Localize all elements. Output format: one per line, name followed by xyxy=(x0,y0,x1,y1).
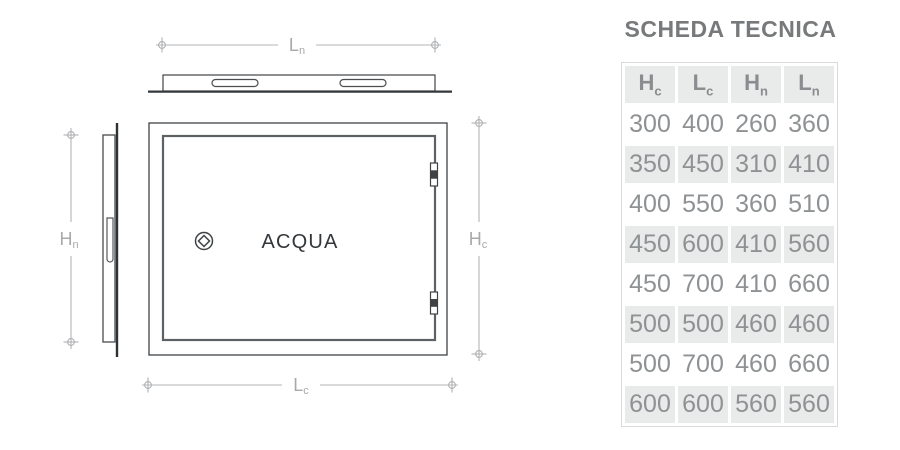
table-row: 450 600 410 560 xyxy=(625,226,834,263)
table-row: 500 500 460 460 xyxy=(625,306,834,343)
table-cell: 510 xyxy=(784,186,834,223)
table-cell: 400 xyxy=(678,106,728,143)
table-cell: 500 xyxy=(678,306,728,343)
table-cell: 500 xyxy=(625,306,675,343)
datasheet-page: Ln Hn ACQUA xyxy=(0,0,900,450)
hinge-icon-bottom xyxy=(431,292,438,314)
dimension-ln: Ln xyxy=(156,35,441,57)
table-cell: 560 xyxy=(784,386,834,423)
page-title: SCHEDA TECNICA xyxy=(621,16,840,43)
table-cell: 410 xyxy=(731,226,781,263)
col-header-lc: Lc xyxy=(678,66,728,103)
table-cell: 260 xyxy=(731,106,781,143)
door-label: ACQUA xyxy=(261,231,338,253)
table-row: 500 700 460 660 xyxy=(625,346,834,383)
col-header-hc: Hc xyxy=(625,66,675,103)
table-cell: 560 xyxy=(731,386,781,423)
dimension-lc: Lc xyxy=(142,375,458,397)
table-row: 350 450 310 410 xyxy=(625,146,834,183)
slot-icon xyxy=(340,80,386,87)
table-cell: 460 xyxy=(731,306,781,343)
table-cell: 450 xyxy=(625,266,675,303)
table-cell: 700 xyxy=(678,346,728,383)
table-row: 400 550 360 510 xyxy=(625,186,834,223)
table-cell: 450 xyxy=(625,226,675,263)
table-cell: 500 xyxy=(625,346,675,383)
dimension-hc: Hc xyxy=(469,116,488,361)
hinge-icon-top xyxy=(431,163,438,186)
table-row: 600 600 560 560 xyxy=(625,386,834,423)
spec-table: Hc Lc Hn Ln 300 400 260 360 350 450 310 … xyxy=(621,62,838,427)
col-header-ln: Ln xyxy=(784,66,834,103)
svg-text:Hn: Hn xyxy=(59,229,78,251)
table-cell: 600 xyxy=(625,386,675,423)
svg-text:Hc: Hc xyxy=(469,229,488,251)
table-cell: 450 xyxy=(678,146,728,183)
table-cell: 360 xyxy=(784,106,834,143)
table-cell: 460 xyxy=(731,346,781,383)
table-header-row: Hc Lc Hn Ln xyxy=(625,66,834,103)
dimension-hn: Hn xyxy=(59,128,78,349)
table-row: 450 700 410 660 xyxy=(625,266,834,303)
table-cell: 360 xyxy=(731,186,781,223)
table-cell: 600 xyxy=(678,386,728,423)
table-cell: 460 xyxy=(784,306,834,343)
table-cell: 700 xyxy=(678,266,728,303)
svg-text:Lc: Lc xyxy=(293,375,309,397)
side-view xyxy=(103,123,117,357)
table-cell: 550 xyxy=(678,186,728,223)
table-cell: 310 xyxy=(731,146,781,183)
table-cell: 660 xyxy=(784,346,834,383)
technical-drawing: Ln Hn ACQUA xyxy=(0,0,560,450)
table-cell: 410 xyxy=(784,146,834,183)
table-cell: 600 xyxy=(678,226,728,263)
table-cell: 400 xyxy=(625,186,675,223)
table-row: 300 400 260 360 xyxy=(625,106,834,143)
slot-icon xyxy=(212,80,258,87)
top-view xyxy=(148,75,452,92)
table-cell: 350 xyxy=(625,146,675,183)
col-header-hn: Hn xyxy=(731,66,781,103)
table-cell: 560 xyxy=(784,226,834,263)
front-view: ACQUA xyxy=(149,123,447,355)
table-cell: 410 xyxy=(731,266,781,303)
svg-text:Ln: Ln xyxy=(289,35,305,57)
table-cell: 300 xyxy=(625,106,675,143)
table-cell: 660 xyxy=(784,266,834,303)
